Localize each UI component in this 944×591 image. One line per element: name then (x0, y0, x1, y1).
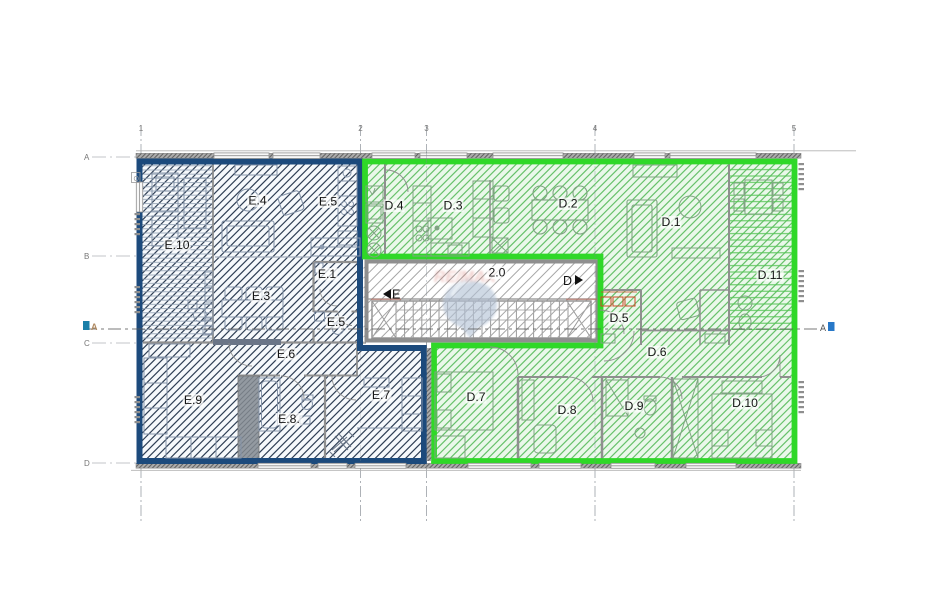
svg-text:E.9: E.9 (184, 393, 203, 407)
svg-text:E.8.: E.8. (278, 412, 300, 426)
svg-text:A: A (820, 323, 826, 333)
svg-text:D.2: D.2 (559, 197, 578, 211)
svg-text:D.9: D.9 (625, 399, 644, 413)
svg-text:1: 1 (139, 124, 144, 133)
svg-text:D.4: D.4 (385, 199, 404, 213)
svg-text:E.10: E.10 (164, 238, 189, 252)
svg-text:4: 4 (593, 124, 598, 133)
svg-text:O: O (134, 176, 140, 183)
svg-text:2: 2 (358, 124, 363, 133)
svg-text:D.8: D.8 (558, 403, 577, 417)
svg-text:C: C (84, 339, 90, 348)
svg-text:D.7: D.7 (467, 390, 486, 404)
svg-text:D: D (563, 274, 572, 288)
svg-text:D.11: D.11 (758, 268, 783, 282)
svg-text:D.6: D.6 (648, 345, 667, 359)
svg-text:3: 3 (424, 124, 429, 133)
svg-text:B: B (84, 252, 89, 261)
svg-text:A: A (91, 322, 98, 332)
svg-text:D: D (84, 459, 90, 468)
svg-text:A: A (84, 153, 90, 162)
svg-text:D.1: D.1 (662, 215, 681, 229)
svg-text:E.1: E.1 (318, 267, 337, 281)
svg-text:E.6: E.6 (277, 347, 296, 361)
svg-text:E.5: E.5 (319, 195, 338, 209)
svg-text:D.3: D.3 (444, 199, 463, 213)
svg-text:E.5: E.5 (327, 315, 346, 329)
svg-text:5: 5 (792, 124, 797, 133)
svg-text:E.3: E.3 (252, 289, 271, 303)
svg-text:E.4: E.4 (248, 194, 267, 208)
svg-text:2.0: 2.0 (489, 266, 506, 280)
svg-text:D.5: D.5 (610, 311, 629, 325)
svg-text:D.10: D.10 (732, 396, 758, 410)
svg-text:E.7: E.7 (372, 388, 391, 402)
